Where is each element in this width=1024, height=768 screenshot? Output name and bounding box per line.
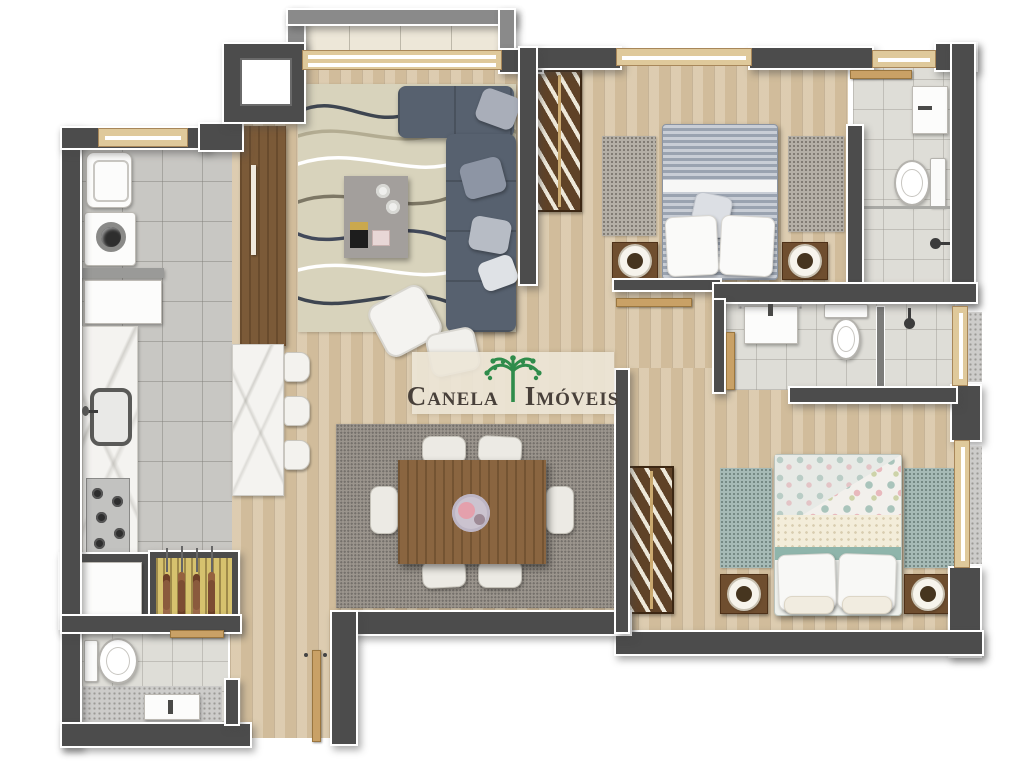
window-sill bbox=[970, 446, 982, 564]
front-door-handle bbox=[304, 653, 308, 657]
wall bbox=[330, 610, 358, 746]
skewer-meat bbox=[193, 574, 200, 618]
front-door-handle bbox=[323, 653, 327, 657]
bar-stool bbox=[284, 352, 310, 382]
wall bbox=[950, 42, 976, 304]
bedroom2-lamp bbox=[729, 579, 759, 609]
wall bbox=[340, 610, 632, 636]
skewer bbox=[181, 546, 183, 572]
wall bbox=[748, 46, 874, 70]
plate-pink-dish bbox=[458, 502, 475, 519]
bedroom2-rug bbox=[720, 468, 772, 568]
shaft-void bbox=[240, 58, 292, 106]
balcony-sliding-door bbox=[302, 50, 502, 70]
bathroom1-toilet-tank bbox=[930, 158, 946, 208]
bathroom2-shower-arm bbox=[908, 308, 911, 320]
bedroom1-wardrobe bbox=[536, 70, 582, 212]
coffee-table-dish bbox=[376, 184, 390, 198]
bathroom2-toilet-tank bbox=[824, 304, 868, 318]
skewer-meat bbox=[163, 574, 170, 618]
bathroom2-door bbox=[726, 332, 735, 390]
bedroom1-window bbox=[616, 48, 752, 66]
coffee-table-dish bbox=[386, 200, 400, 214]
skewer-meat bbox=[208, 572, 215, 618]
wall bbox=[198, 122, 244, 152]
skewer-meat bbox=[178, 572, 185, 618]
dining-chair bbox=[478, 560, 522, 588]
bathroom1-vanity bbox=[912, 86, 948, 134]
wall bbox=[60, 126, 82, 748]
dining-chair bbox=[546, 486, 574, 534]
wall-bathroom1-left bbox=[846, 124, 864, 290]
wall-bathroom2-bottom bbox=[788, 386, 958, 404]
watermark-word2: Imóveis bbox=[525, 383, 620, 410]
skewer bbox=[211, 546, 213, 572]
lavabo-toilet-bowl bbox=[98, 638, 138, 684]
kitchen-sink bbox=[90, 388, 132, 446]
bedroom2-rug bbox=[904, 468, 958, 568]
wall-bathrooms-band bbox=[712, 282, 978, 304]
bathroom1-door bbox=[850, 70, 912, 79]
plate-small-dish bbox=[474, 514, 485, 525]
burner bbox=[96, 512, 107, 523]
bathroom1-window bbox=[872, 50, 936, 68]
bathroom1-shower-arm bbox=[938, 242, 950, 245]
bed1-pillow bbox=[718, 215, 775, 278]
bedroom2-wardrobe bbox=[628, 466, 674, 614]
dining-chair bbox=[370, 486, 398, 534]
bedroom1-door bbox=[616, 298, 692, 307]
bar-stool bbox=[284, 396, 310, 426]
bathroom1-toilet-bowl bbox=[894, 160, 930, 206]
bathroom2-partition bbox=[876, 306, 885, 388]
bedroom2-lamp bbox=[913, 579, 943, 609]
laundry-tub-basin bbox=[93, 160, 129, 202]
bar-stool bbox=[284, 440, 310, 470]
entry-floor bbox=[230, 588, 346, 738]
wall bbox=[614, 630, 984, 656]
wall-bedroom1-bottom bbox=[612, 278, 722, 292]
lavabo-toilet-tank bbox=[84, 640, 98, 682]
bedroom2-window bbox=[954, 440, 970, 568]
laundry-window bbox=[98, 128, 188, 147]
window-sill bbox=[968, 312, 982, 382]
laundry-cabinet bbox=[84, 280, 162, 324]
tall-cabinet bbox=[240, 126, 286, 346]
skewer bbox=[196, 548, 198, 572]
bathroom1-faucet bbox=[918, 106, 932, 110]
bed2-front-pillow bbox=[842, 596, 892, 614]
wall-living-bedroom1 bbox=[518, 46, 538, 286]
bathroom2-toilet-bowl bbox=[831, 318, 861, 360]
island-counter bbox=[232, 344, 284, 496]
burner bbox=[94, 538, 105, 549]
bathroom2-window bbox=[952, 306, 968, 386]
wall-lavabo-right bbox=[224, 678, 240, 726]
burner bbox=[114, 528, 125, 539]
bed1-white-band bbox=[663, 180, 777, 192]
bed2-front-pillow bbox=[784, 596, 834, 614]
watermark-word1: Canela bbox=[407, 383, 499, 410]
lavabo-basin-tap bbox=[168, 700, 173, 714]
bedroom1-lamp bbox=[790, 246, 820, 276]
coffee-table-box bbox=[372, 230, 390, 246]
watermark: Canela Imóveis bbox=[412, 352, 614, 414]
bedroom1-rug bbox=[602, 136, 656, 236]
bedroom1-rug bbox=[788, 136, 844, 232]
skewer bbox=[166, 548, 168, 572]
bed2-mattress-band bbox=[775, 515, 901, 549]
burner bbox=[112, 496, 123, 507]
kitchen-faucet-base bbox=[82, 406, 89, 416]
front-door bbox=[312, 650, 321, 742]
wall-bathroom2-left bbox=[712, 298, 726, 394]
lavabo-door bbox=[170, 630, 224, 638]
balcony-wall-top bbox=[286, 8, 516, 26]
sofa-pillow bbox=[467, 215, 512, 255]
floor-plan: Canela Imóveis bbox=[0, 0, 1024, 768]
bed1-pillow bbox=[664, 215, 719, 278]
bedroom1-lamp bbox=[620, 246, 650, 276]
burner bbox=[92, 488, 103, 499]
coffee-table-book bbox=[350, 222, 368, 248]
laundry-counter bbox=[80, 268, 164, 278]
bathroom1-glass-partition bbox=[856, 206, 952, 209]
cabinet-handle bbox=[251, 165, 256, 255]
watermark-text: Canela Imóveis bbox=[412, 383, 614, 410]
washer-door bbox=[96, 222, 126, 252]
